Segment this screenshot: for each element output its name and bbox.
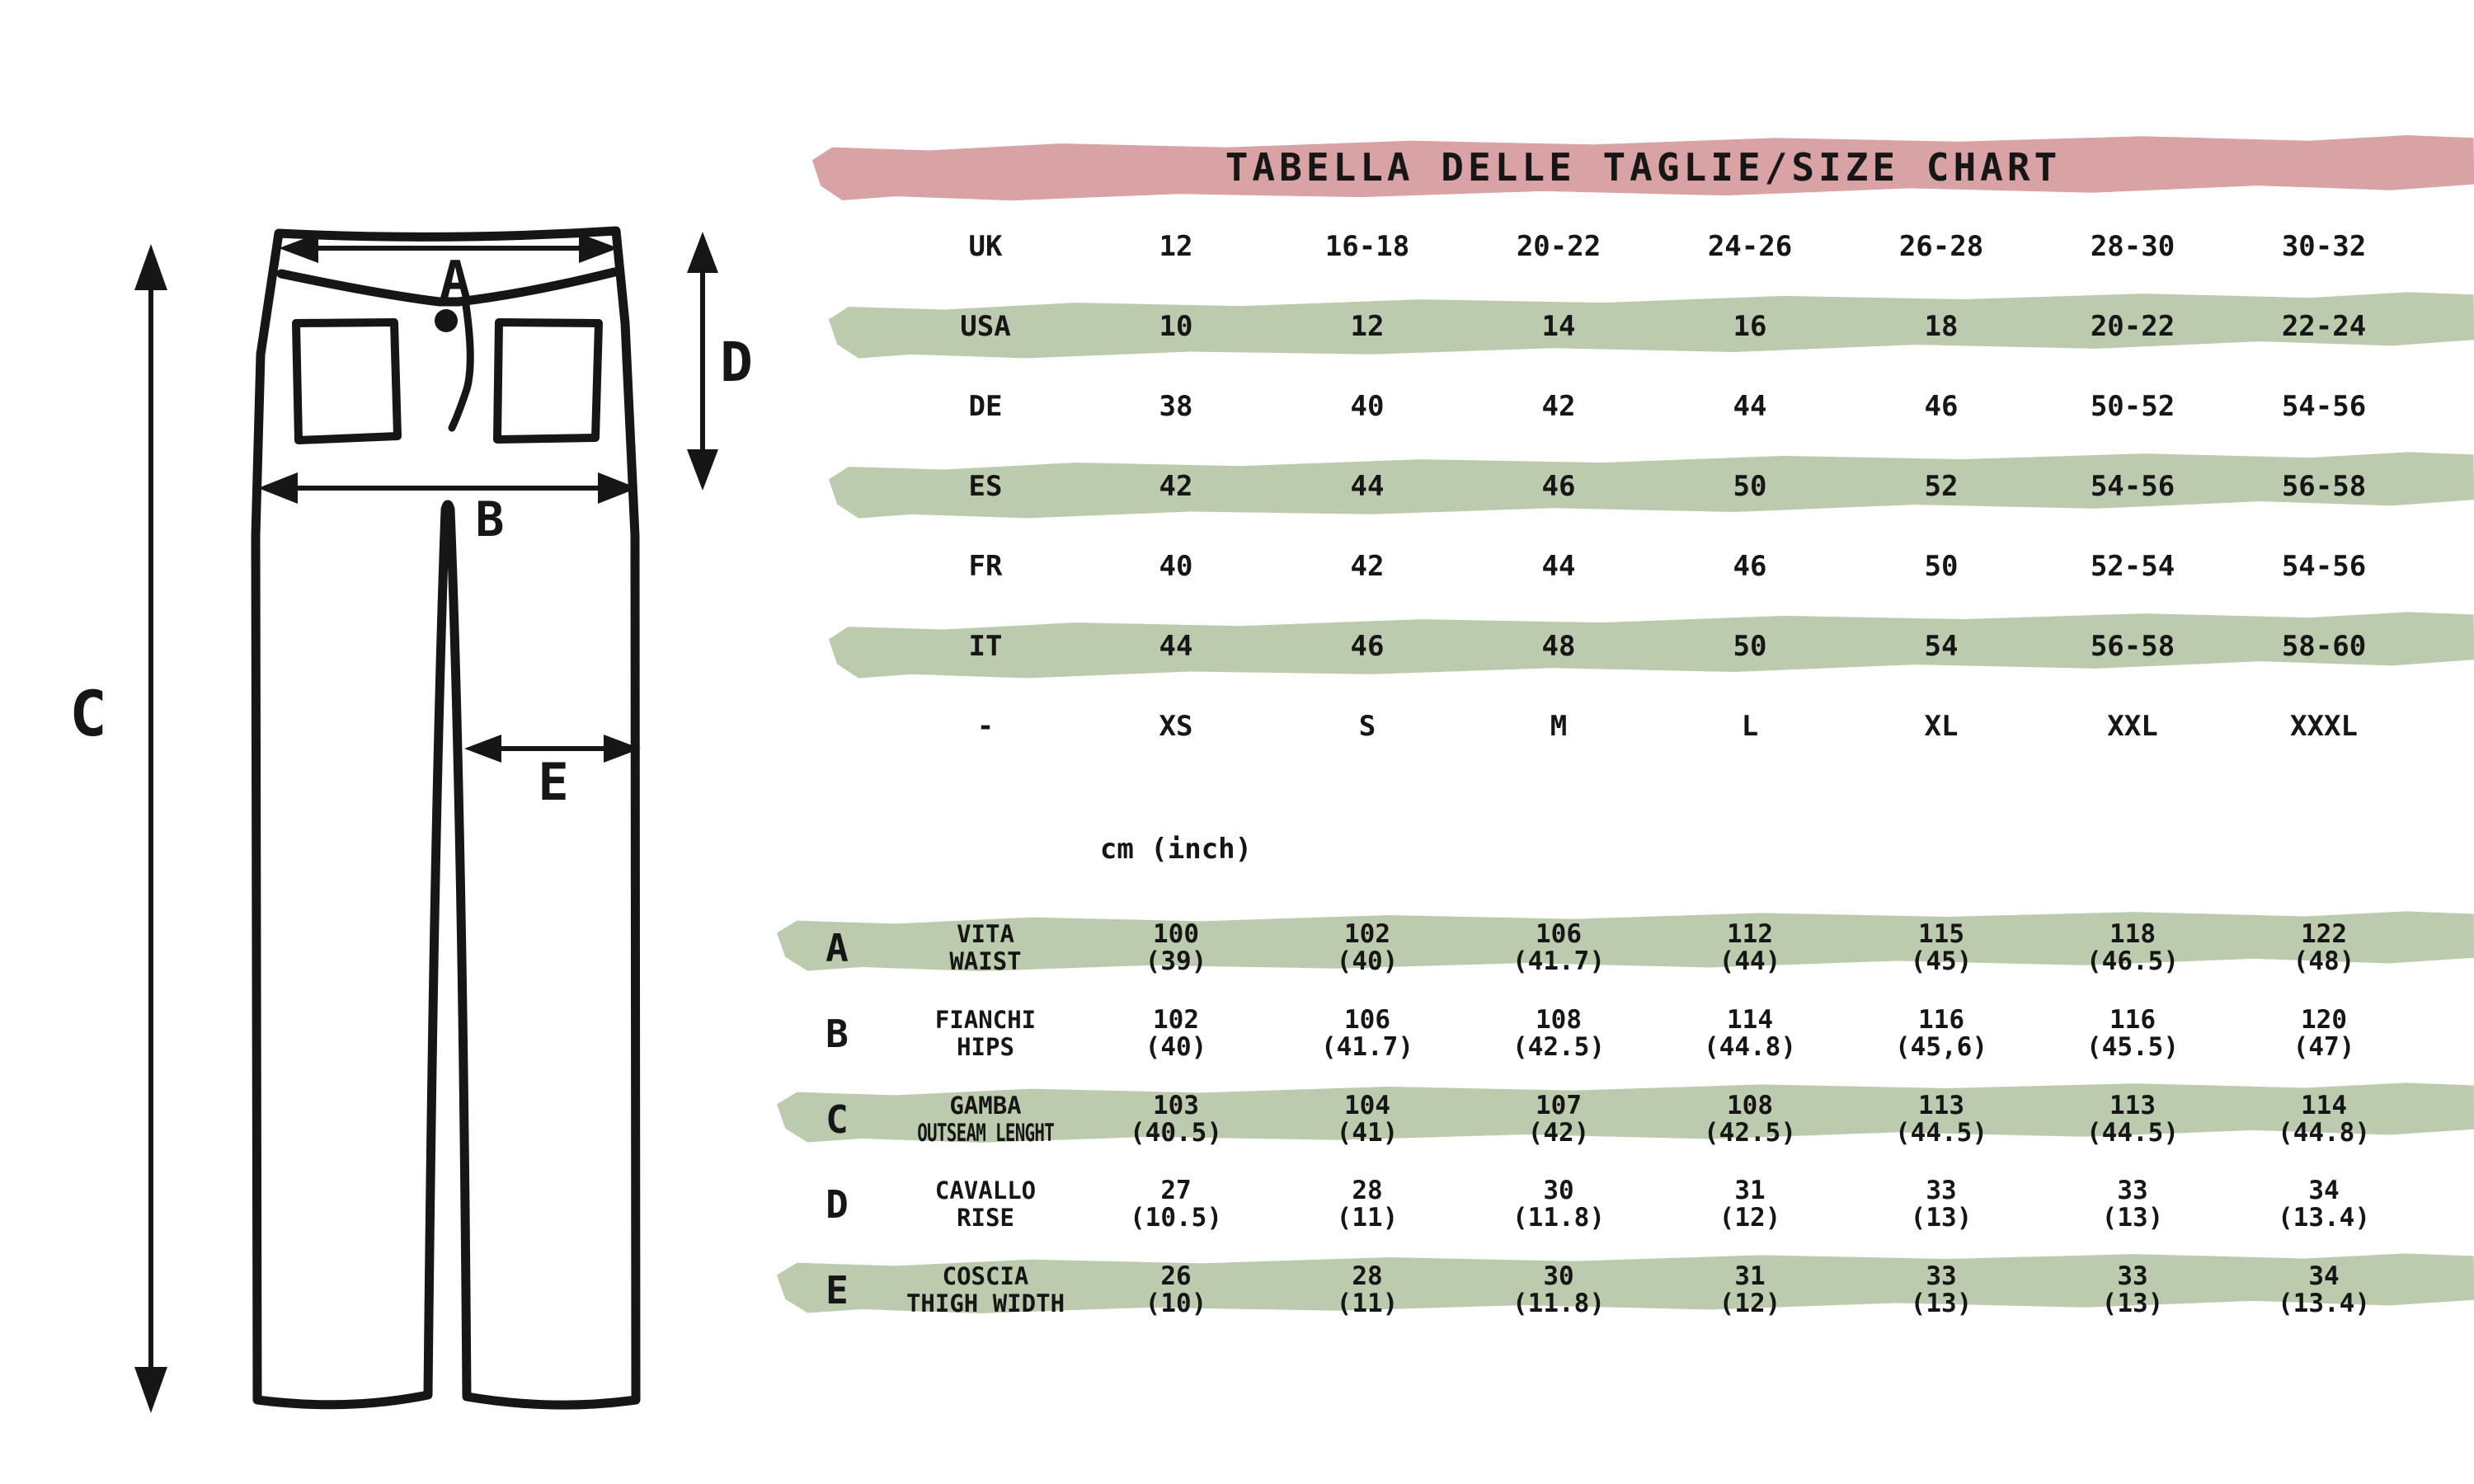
measurement-inch-value: (13)	[1846, 1290, 2037, 1317]
size-cell: 16-18	[1272, 230, 1463, 263]
measurement-cm-value: 114	[2228, 1092, 2420, 1120]
measurement-inch-value: (45,6)	[1846, 1034, 2037, 1061]
measurement-letter: D	[783, 1170, 891, 1239]
measurement-cm-value: 28	[1272, 1177, 1463, 1205]
measurement-cell: 114(44.8)	[1654, 1007, 1846, 1061]
measurement-name: COSCIA THIGH WIDTH	[891, 1263, 1080, 1317]
size-cell: 48	[1463, 630, 1654, 663]
measurement-cm-value: 102	[1272, 921, 1463, 948]
size-cell: 56-58	[2037, 630, 2228, 663]
measurement-cell: 34(13.4)	[2228, 1177, 2420, 1232]
measurement-cm-value: 34	[2228, 1177, 2420, 1205]
measurement-inch-value: (47)	[2228, 1034, 2420, 1061]
measurement-cell: 113(44.5)	[1846, 1092, 2037, 1147]
measurement-cell: 116(45,6)	[1846, 1007, 2037, 1061]
unit-label: cm (inch)	[1080, 824, 1272, 874]
pants-diagram: A B C D E	[0, 0, 825, 1484]
pants-outline	[256, 231, 636, 1405]
measurement-inch-value: (11.8)	[1463, 1205, 1654, 1232]
measurement-cm-value: 107	[1463, 1092, 1654, 1120]
size-cell: 54-56	[2037, 470, 2228, 503]
page-title: TABELLA DELLE TAGLIE/SIZE CHART	[812, 137, 2474, 198]
measurement-cell: 100(39)	[1080, 921, 1272, 975]
measurement-cm-value: 33	[1846, 1177, 2037, 1205]
size-cell: 20-22	[2037, 310, 2228, 343]
size-cell: 44	[1463, 550, 1654, 583]
size-cell: 12	[1272, 310, 1463, 343]
measurement-inch-value: (13.4)	[2228, 1205, 2420, 1232]
measurement-cm-value: 102	[1080, 1007, 1272, 1034]
size-cell: 42	[1463, 390, 1654, 423]
measurement-cell: 108(42.5)	[1463, 1007, 1654, 1061]
measurement-cm-value: 120	[2228, 1007, 2420, 1034]
size-cell: 44	[1272, 470, 1463, 503]
measurement-inch-value: (40.5)	[1080, 1120, 1272, 1147]
size-row: ES 424446505254-5656-58	[783, 453, 2474, 519]
measurement-cm-value: 31	[1654, 1263, 1846, 1290]
size-cell: 28-30	[2037, 230, 2228, 263]
size-cell: 54-56	[2228, 390, 2420, 423]
measurement-row: A VITA WAIST 100(39)102(40)106(41.7)112(…	[783, 913, 2474, 983]
size-cell: XS	[1080, 710, 1272, 743]
right-pocket	[497, 322, 599, 439]
measurement-cm-value: 113	[1846, 1092, 2037, 1120]
measurement-cell: 27(10.5)	[1080, 1177, 1272, 1232]
size-cell: 18	[1846, 310, 2037, 343]
measurement-row: C GAMBA OUTSEAM LENGHT 103(40.5)104(41)1…	[783, 1085, 2474, 1154]
measurement-cell: 28(11)	[1272, 1263, 1463, 1317]
size-cell: XXL	[2037, 710, 2228, 743]
measurement-cell: 31(12)	[1654, 1263, 1846, 1317]
measurement-name-en: RISE	[891, 1205, 1080, 1232]
measurement-inch-value: (13)	[2037, 1205, 2228, 1232]
size-cell: 46	[1463, 470, 1654, 503]
size-cell: 40	[1272, 390, 1463, 423]
measurement-name-en: OUTSEAM LENGHT	[917, 1120, 1054, 1147]
measurement-cell: 116(45.5)	[2037, 1007, 2228, 1061]
measurement-row: E COSCIA THIGH WIDTH 26(10)28(11)30(11.8…	[783, 1256, 2474, 1325]
measurement-cm-value: 103	[1080, 1092, 1272, 1120]
measurement-inch-value: (12)	[1654, 1205, 1846, 1232]
measurement-cell: 104(41)	[1272, 1092, 1463, 1147]
size-cell: M	[1463, 710, 1654, 743]
measurement-name: VITA WAIST	[891, 921, 1080, 975]
measurement-inch-value: (44.5)	[1846, 1120, 2037, 1147]
measurement-cm-value: 30	[1463, 1177, 1654, 1205]
measurement-cm-value: 116	[1846, 1007, 2037, 1034]
measurement-inch-value: (10.5)	[1080, 1205, 1272, 1232]
measurement-inch-value: (45)	[1846, 948, 2037, 975]
measurement-inch-value: (11)	[1272, 1205, 1463, 1232]
size-row: - XSSMLXLXXLXXXL	[783, 693, 2474, 759]
size-row-region: DE	[891, 390, 1080, 423]
measurement-cell: 106(41.7)	[1463, 921, 1654, 975]
size-row: UK 1216-1820-2224-2626-2828-3030-32	[783, 214, 2474, 279]
measurement-letter: A	[783, 913, 891, 983]
measurement-cm-value: 114	[1654, 1007, 1846, 1034]
measurement-letter: E	[783, 1256, 891, 1325]
measurement-cell: 113(44.5)	[2037, 1092, 2228, 1147]
measurement-inch-value: (40)	[1272, 948, 1463, 975]
measurement-letter: C	[783, 1085, 891, 1154]
measurement-letter: B	[783, 999, 891, 1068]
measurement-cell: 33(13)	[2037, 1263, 2228, 1317]
size-row: USA 101214161820-2222-24	[783, 294, 2474, 359]
size-cell: 50-52	[2037, 390, 2228, 423]
left-pocket	[296, 322, 397, 440]
measurement-cell: 31(12)	[1654, 1177, 1846, 1232]
measurement-inch-value: (42.5)	[1463, 1034, 1654, 1061]
measurement-cell: 118(46.5)	[2037, 921, 2228, 975]
measurement-inch-value: (13.4)	[2228, 1290, 2420, 1317]
measurement-inch-value: (13)	[1846, 1205, 2037, 1232]
size-row-region: IT	[891, 630, 1080, 663]
measurement-cm-value: 104	[1272, 1092, 1463, 1120]
size-row-region: ES	[891, 470, 1080, 503]
measurement-cm-value: 115	[1846, 921, 2037, 948]
measurement-cell: 122(48)	[2228, 921, 2420, 975]
measurement-inch-value: (44.5)	[2037, 1120, 2228, 1147]
measurement-cm-value: 30	[1463, 1263, 1654, 1290]
size-cell: XL	[1846, 710, 2037, 743]
measurement-inch-value: (41)	[1272, 1120, 1463, 1147]
size-cell: 46	[1846, 390, 2037, 423]
size-cell: 38	[1080, 390, 1272, 423]
measurement-cell: 33(13)	[1846, 1177, 2037, 1232]
size-cell: 52	[1846, 470, 2037, 503]
size-cell: 50	[1846, 550, 2037, 583]
measurement-cm-value: 33	[2037, 1263, 2228, 1290]
size-cell: 16	[1654, 310, 1846, 343]
measurement-cell: 106(41.7)	[1272, 1007, 1463, 1061]
size-cell: 46	[1654, 550, 1846, 583]
size-cell: 20-22	[1463, 230, 1654, 263]
measurement-inch-value: (42.5)	[1654, 1120, 1846, 1147]
measurement-cm-value: 27	[1080, 1177, 1272, 1205]
size-row: FR 404244465052-5454-56	[783, 533, 2474, 599]
measurement-inch-value: (10)	[1080, 1290, 1272, 1317]
measurement-cm-value: 112	[1654, 921, 1846, 948]
measurement-cell: 115(45)	[1846, 921, 2037, 975]
measurement-cell: 112(44)	[1654, 921, 1846, 975]
measurement-inch-value: (48)	[2228, 948, 2420, 975]
size-row: IT 444648505456-5858-60	[783, 613, 2474, 679]
size-row-region: USA	[891, 310, 1080, 343]
size-cell: 54-56	[2228, 550, 2420, 583]
measurement-inch-value: (12)	[1654, 1290, 1846, 1317]
measurement-name-en: WAIST	[891, 948, 1080, 975]
measurement-inch-value: (41.7)	[1463, 948, 1654, 975]
measurement-cm-value: 118	[2037, 921, 2228, 948]
size-cell: 22-24	[2228, 310, 2420, 343]
measurement-inch-value: (41.7)	[1272, 1034, 1463, 1061]
measurement-cm-value: 34	[2228, 1263, 2420, 1290]
measurement-cm-value: 26	[1080, 1263, 1272, 1290]
measurement-name-it: VITA	[891, 921, 1080, 948]
size-cell: 44	[1654, 390, 1846, 423]
diagram-label-a: A	[440, 251, 472, 312]
size-cell: 14	[1463, 310, 1654, 343]
measurement-cm-value: 33	[1846, 1263, 2037, 1290]
measurement-name: CAVALLO RISE	[891, 1177, 1080, 1232]
measurement-name-it: CAVALLO	[891, 1177, 1080, 1205]
measurement-inch-value: (39)	[1080, 948, 1272, 975]
measurement-name: FIANCHI HIPS	[891, 1007, 1080, 1061]
size-cell: L	[1654, 710, 1846, 743]
measurement-cm-value: 113	[2037, 1092, 2228, 1120]
measurement-cm-value: 108	[1463, 1007, 1654, 1034]
measurement-cm-value: 33	[2037, 1177, 2228, 1205]
diagram-label-e: E	[538, 752, 568, 812]
measurement-cell: 33(13)	[1846, 1263, 2037, 1317]
size-cell: 52-54	[2037, 550, 2228, 583]
size-cell: XXXL	[2228, 710, 2420, 743]
diagram-label-d: D	[720, 331, 753, 394]
measurement-name-en: HIPS	[891, 1034, 1080, 1061]
measurement-inch-value: (40)	[1080, 1034, 1272, 1061]
measurement-cm-value: 108	[1654, 1092, 1846, 1120]
size-cell: 10	[1080, 310, 1272, 343]
measurement-cell: 30(11.8)	[1463, 1177, 1654, 1232]
measurement-cm-value: 28	[1272, 1263, 1463, 1290]
measurement-name-it: COSCIA	[891, 1263, 1080, 1290]
measurement-row: D CAVALLO RISE 27(10.5)28(11)30(11.8)31(…	[783, 1170, 2474, 1239]
measurement-cell: 108(42.5)	[1654, 1092, 1846, 1147]
size-cell: 46	[1272, 630, 1463, 663]
measurement-cm-value: 116	[2037, 1007, 2228, 1034]
measurement-cell: 120(47)	[2228, 1007, 2420, 1061]
measurement-cm-value: 100	[1080, 921, 1272, 948]
size-cell: 40	[1080, 550, 1272, 583]
measurement-cm-value: 106	[1463, 921, 1654, 948]
measurement-cm-value: 106	[1272, 1007, 1463, 1034]
measurement-cell: 102(40)	[1272, 921, 1463, 975]
diagram-label-c: C	[69, 677, 107, 750]
measurement-inch-value: (46.5)	[2037, 948, 2228, 975]
measurement-inch-value: (44.8)	[2228, 1120, 2420, 1147]
size-row-region: -	[891, 710, 1080, 743]
size-cell: 44	[1080, 630, 1272, 663]
measurement-inch-value: (11.8)	[1463, 1290, 1654, 1317]
size-cell: 58-60	[2228, 630, 2420, 663]
measurement-cell: 114(44.8)	[2228, 1092, 2420, 1147]
measurement-cell: 28(11)	[1272, 1177, 1463, 1232]
measurement-inch-value: (44.8)	[1654, 1034, 1846, 1061]
size-cell: 56-58	[2228, 470, 2420, 503]
measurement-cell: 103(40.5)	[1080, 1092, 1272, 1147]
measurement-cm-value: 122	[2228, 921, 2420, 948]
measure-arrow-b	[258, 472, 637, 504]
measurement-name-it: FIANCHI	[891, 1007, 1080, 1034]
size-cell: 26-28	[1846, 230, 2037, 263]
measurement-cell: 30(11.8)	[1463, 1263, 1654, 1317]
measurement-inch-value: (11)	[1272, 1290, 1463, 1317]
size-cell: 42	[1272, 550, 1463, 583]
measurement-inch-value: (44)	[1654, 948, 1846, 975]
size-cell: 50	[1654, 630, 1846, 663]
measurement-cell: 107(42)	[1463, 1092, 1654, 1147]
measurement-row: B FIANCHI HIPS 102(40)106(41.7)108(42.5)…	[783, 999, 2474, 1068]
size-cell: 54	[1846, 630, 2037, 663]
measure-arrow-d	[687, 232, 718, 491]
size-row-region: UK	[891, 230, 1080, 263]
measurement-name-it: GAMBA	[891, 1092, 1080, 1120]
diagram-label-b: B	[476, 491, 505, 547]
measurement-cell: 102(40)	[1080, 1007, 1272, 1061]
measurement-cm-value: 31	[1654, 1177, 1846, 1205]
measurement-name-en: THIGH WIDTH	[891, 1290, 1080, 1317]
page: A B C D E TABELLA DELLE TAGLIE/SIZE CHAR…	[0, 0, 2474, 1484]
measure-arrow-c	[134, 244, 167, 1413]
button-dot	[435, 309, 458, 332]
measurement-inch-value: (13)	[2037, 1290, 2228, 1317]
size-cell: 30-32	[2228, 230, 2420, 263]
size-row-region: FR	[891, 550, 1080, 583]
measurement-name: GAMBA OUTSEAM LENGHT	[891, 1092, 1080, 1147]
measurement-inch-value: (45.5)	[2037, 1034, 2228, 1061]
size-cell: 42	[1080, 470, 1272, 503]
size-cell: 50	[1654, 470, 1846, 503]
size-row: DE 384042444650-5254-56	[783, 373, 2474, 439]
measurement-cell: 34(13.4)	[2228, 1263, 2420, 1317]
size-cell: S	[1272, 710, 1463, 743]
size-cell: 24-26	[1654, 230, 1846, 263]
size-cell: 12	[1080, 230, 1272, 263]
measurement-cell: 33(13)	[2037, 1177, 2228, 1232]
measurement-cell: 26(10)	[1080, 1263, 1272, 1317]
measurement-inch-value: (42)	[1463, 1120, 1654, 1147]
